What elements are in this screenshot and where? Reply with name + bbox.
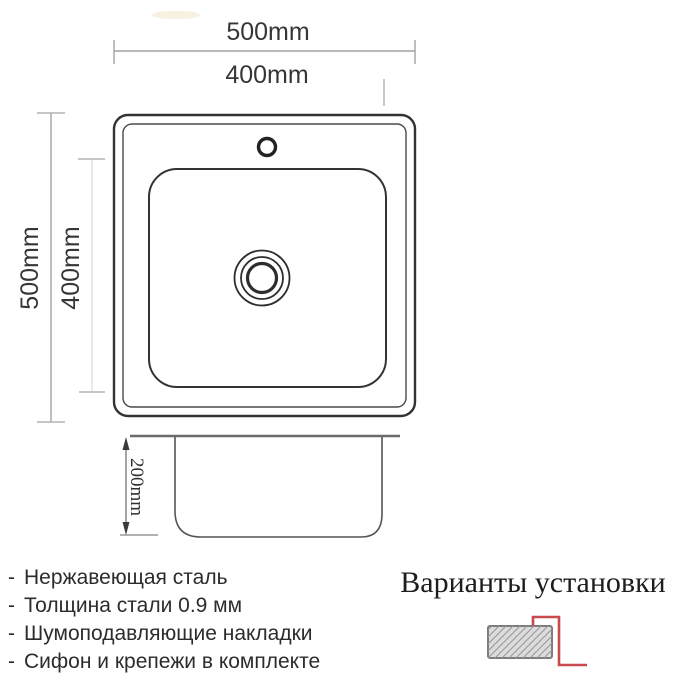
sink-top-view: [114, 115, 415, 416]
feature-bullet: -: [8, 650, 15, 674]
faucet-hole: [259, 139, 276, 156]
feature-text: Толщина стали 0.9 мм: [24, 594, 242, 618]
feature-text: Сифон и крепежи в комплекте: [24, 650, 320, 674]
sink-side-view: [120, 436, 400, 537]
sink-bowl-edge: [149, 169, 386, 387]
feature-bullet: -: [8, 594, 15, 618]
feature-item: - Сифон и крепежи в комплекте: [8, 648, 320, 676]
dim-label-width-outer: 500mm: [188, 19, 348, 45]
dim-label-height-bowl: 400mm: [58, 188, 84, 348]
dim-label-depth: 200mm: [123, 447, 149, 527]
dim-label-width-bowl: 400mm: [187, 62, 347, 88]
feature-list: - Нержавеющая сталь - Толщина стали 0.9 …: [8, 564, 320, 676]
sink-rim-inner-edge: [123, 124, 406, 407]
installation-diagram: [488, 617, 587, 665]
feature-text: Нержавеющая сталь: [24, 566, 228, 590]
sink-spec-sheet: 500mm 400mm 500mm 400mm 200mm - Нержавею…: [0, 0, 700, 700]
side-bowl-outline: [175, 437, 382, 537]
feature-item: - Толщина стали 0.9 мм: [8, 592, 320, 620]
dim-label-height-outer: 500mm: [17, 188, 43, 348]
installation-title: Варианты установки: [373, 566, 693, 600]
scan-smudge: [152, 11, 200, 19]
feature-item: - Шумоподавляющие накладки: [8, 620, 320, 648]
sink-outer-edge: [114, 115, 415, 416]
dimension-lines: [37, 40, 415, 422]
feature-text: Шумоподавляющие накладки: [24, 622, 313, 646]
feature-item: - Нержавеющая сталь: [8, 564, 320, 592]
feature-bullet: -: [8, 622, 15, 646]
drain: [235, 251, 290, 306]
feature-bullet: -: [8, 566, 15, 590]
